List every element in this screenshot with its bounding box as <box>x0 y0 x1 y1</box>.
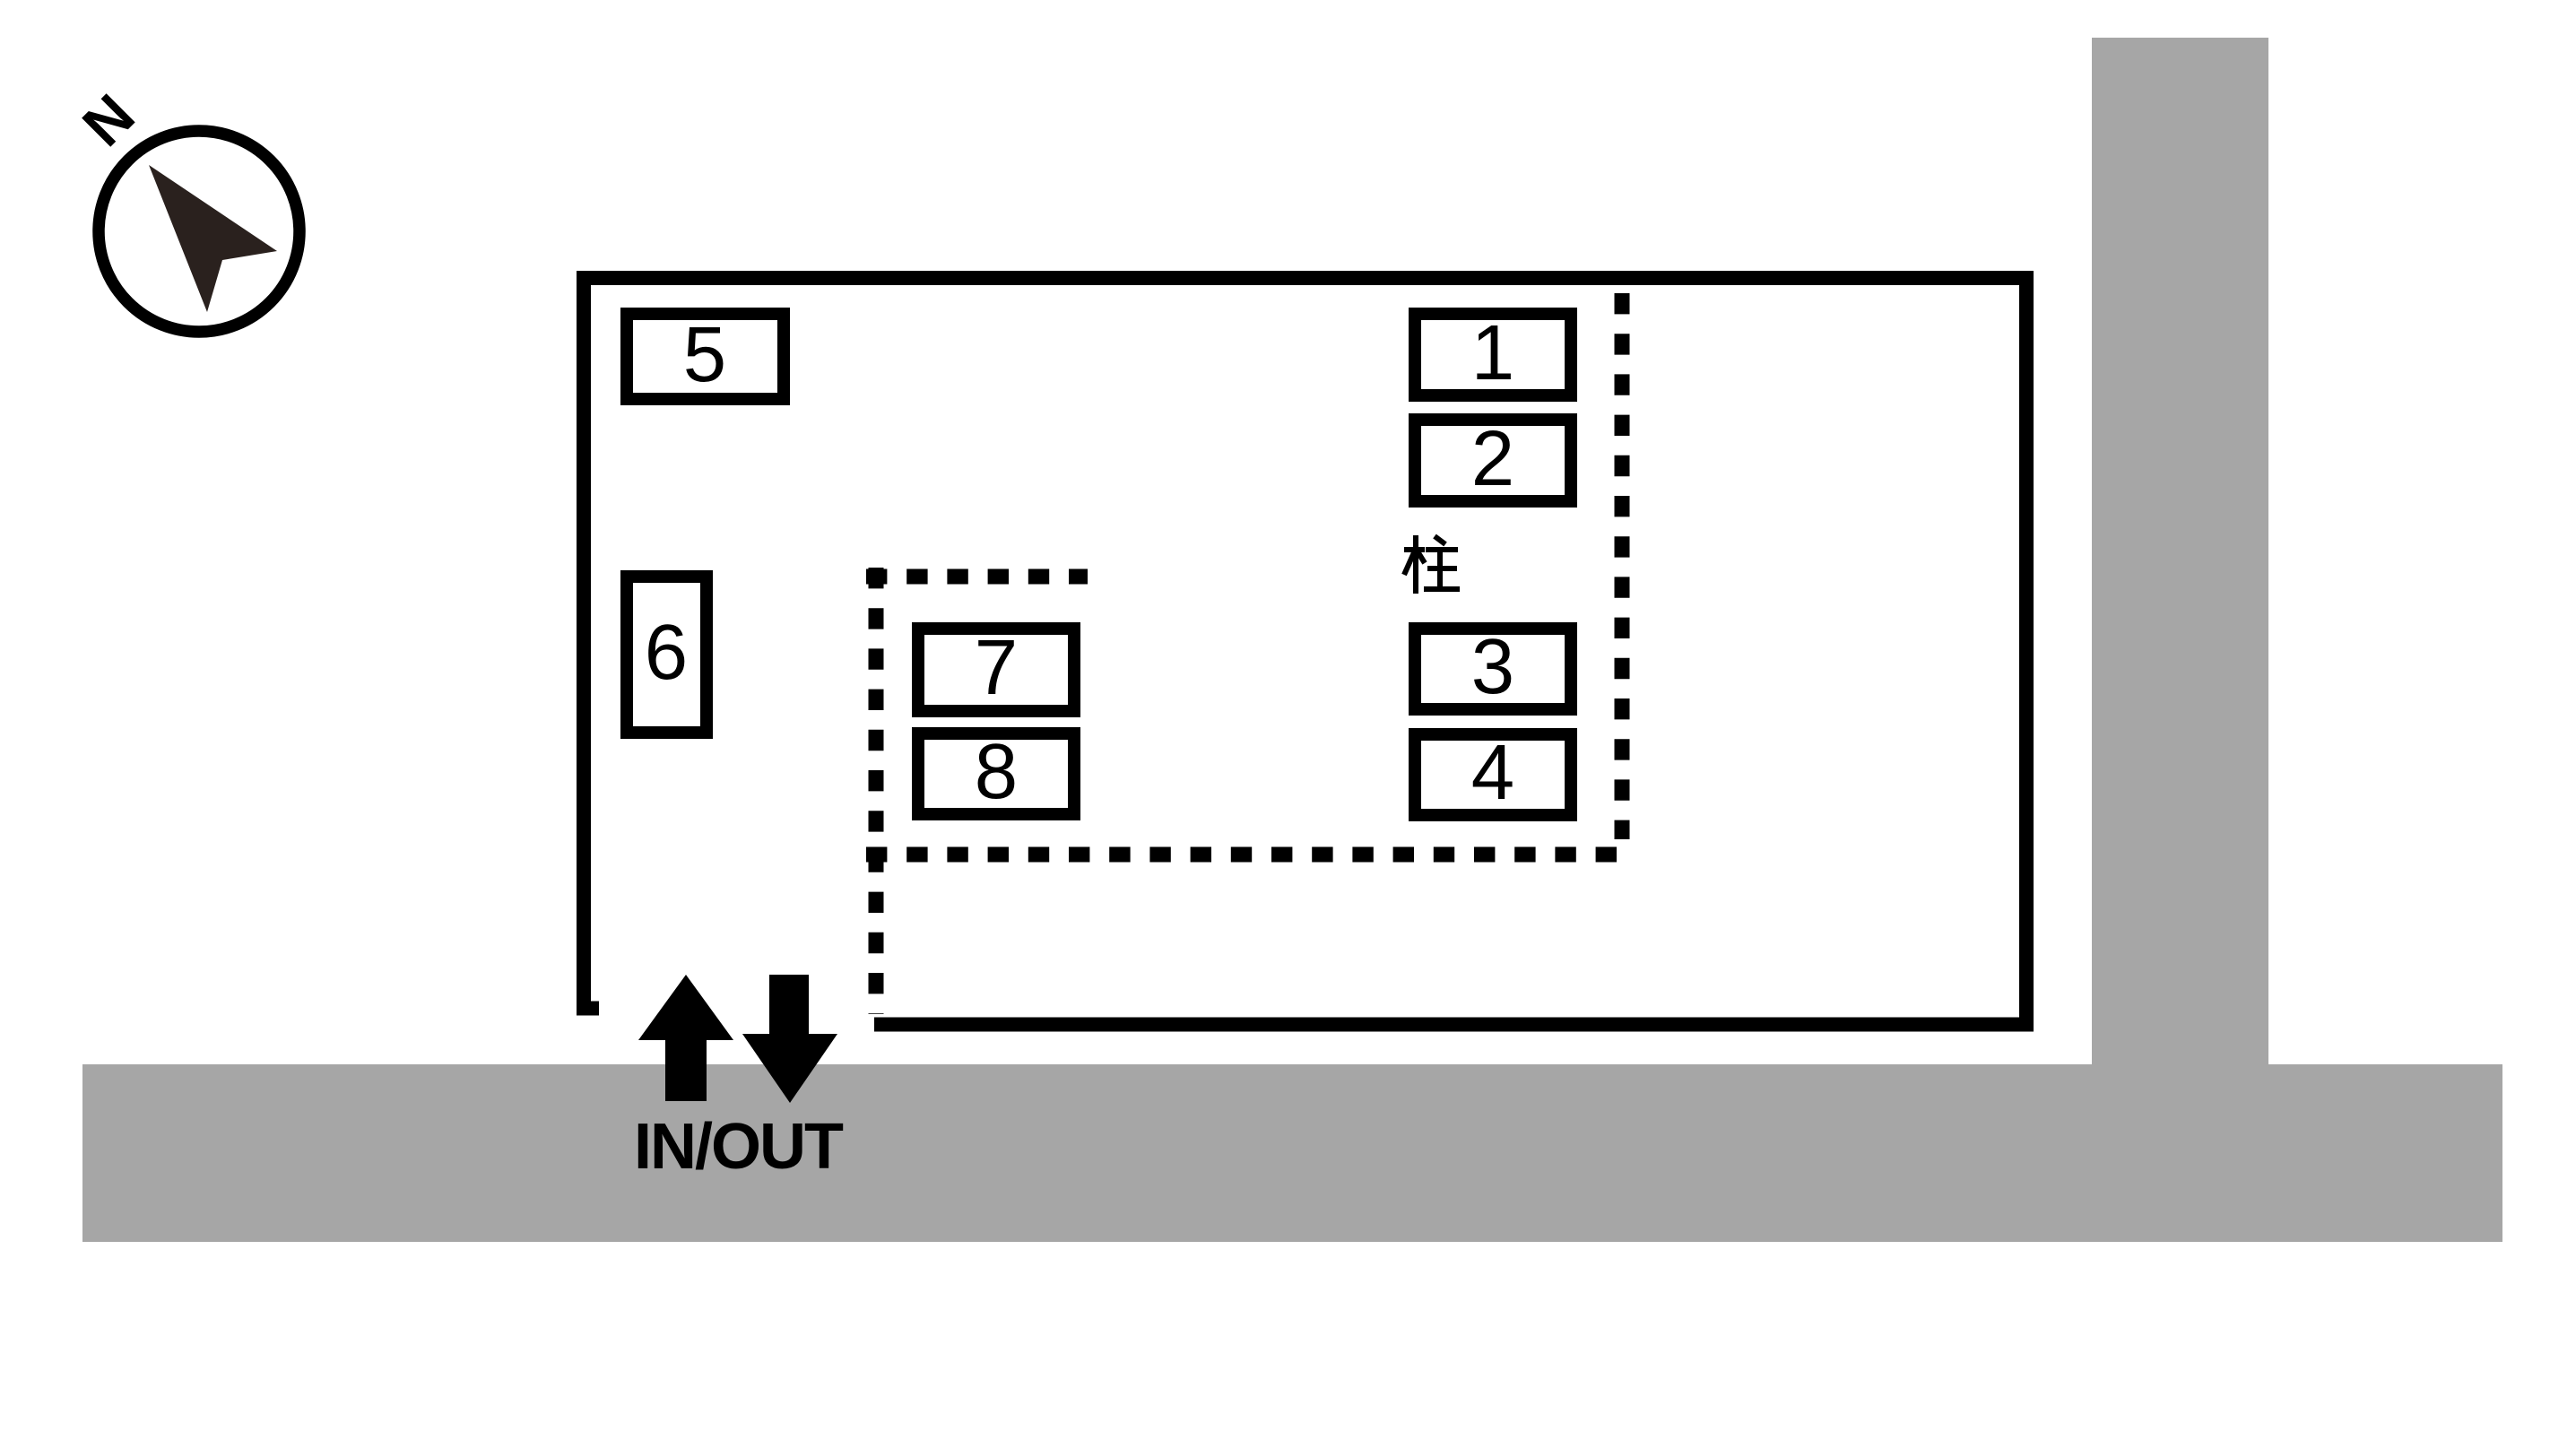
svg-text:1: 1 <box>1471 309 1514 396</box>
svg-text:IN/OUT: IN/OUT <box>634 1111 844 1183</box>
svg-text:3: 3 <box>1471 623 1514 710</box>
svg-text:5: 5 <box>683 311 726 398</box>
svg-text:7: 7 <box>975 624 1018 711</box>
svg-text:6: 6 <box>645 609 688 696</box>
svg-text:8: 8 <box>975 728 1018 815</box>
svg-text:2: 2 <box>1471 415 1514 502</box>
svg-text:4: 4 <box>1471 729 1514 816</box>
